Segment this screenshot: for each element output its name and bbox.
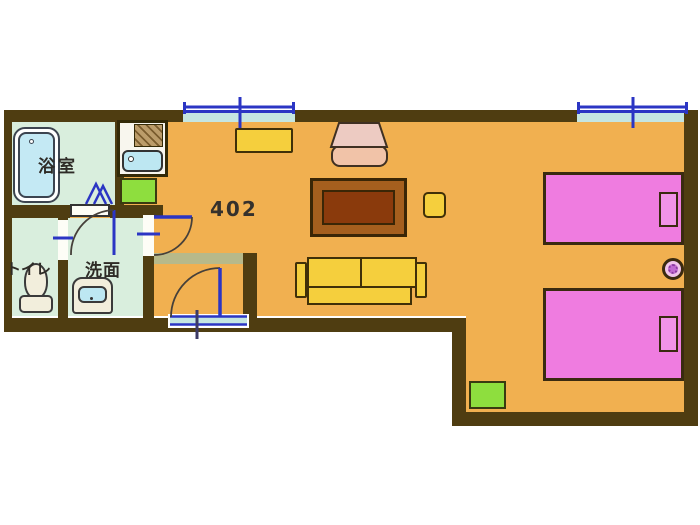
floor-plan: 浴室 トイレ 洗面 402	[0, 0, 700, 525]
toilet-label: トイレ	[6, 258, 51, 279]
washbasin-label: 洗面	[85, 256, 121, 281]
window-1	[183, 97, 295, 128]
unit-number: 402	[210, 197, 258, 221]
washroom-door	[71, 210, 114, 255]
bathroom-folding-door	[86, 184, 112, 204]
armchair-backrest	[331, 123, 387, 147]
bathroom-label: 浴室	[38, 152, 78, 177]
toilet-door	[53, 220, 73, 260]
window-2	[577, 97, 688, 128]
main-room-door	[137, 215, 192, 256]
entrance-door	[168, 268, 249, 339]
